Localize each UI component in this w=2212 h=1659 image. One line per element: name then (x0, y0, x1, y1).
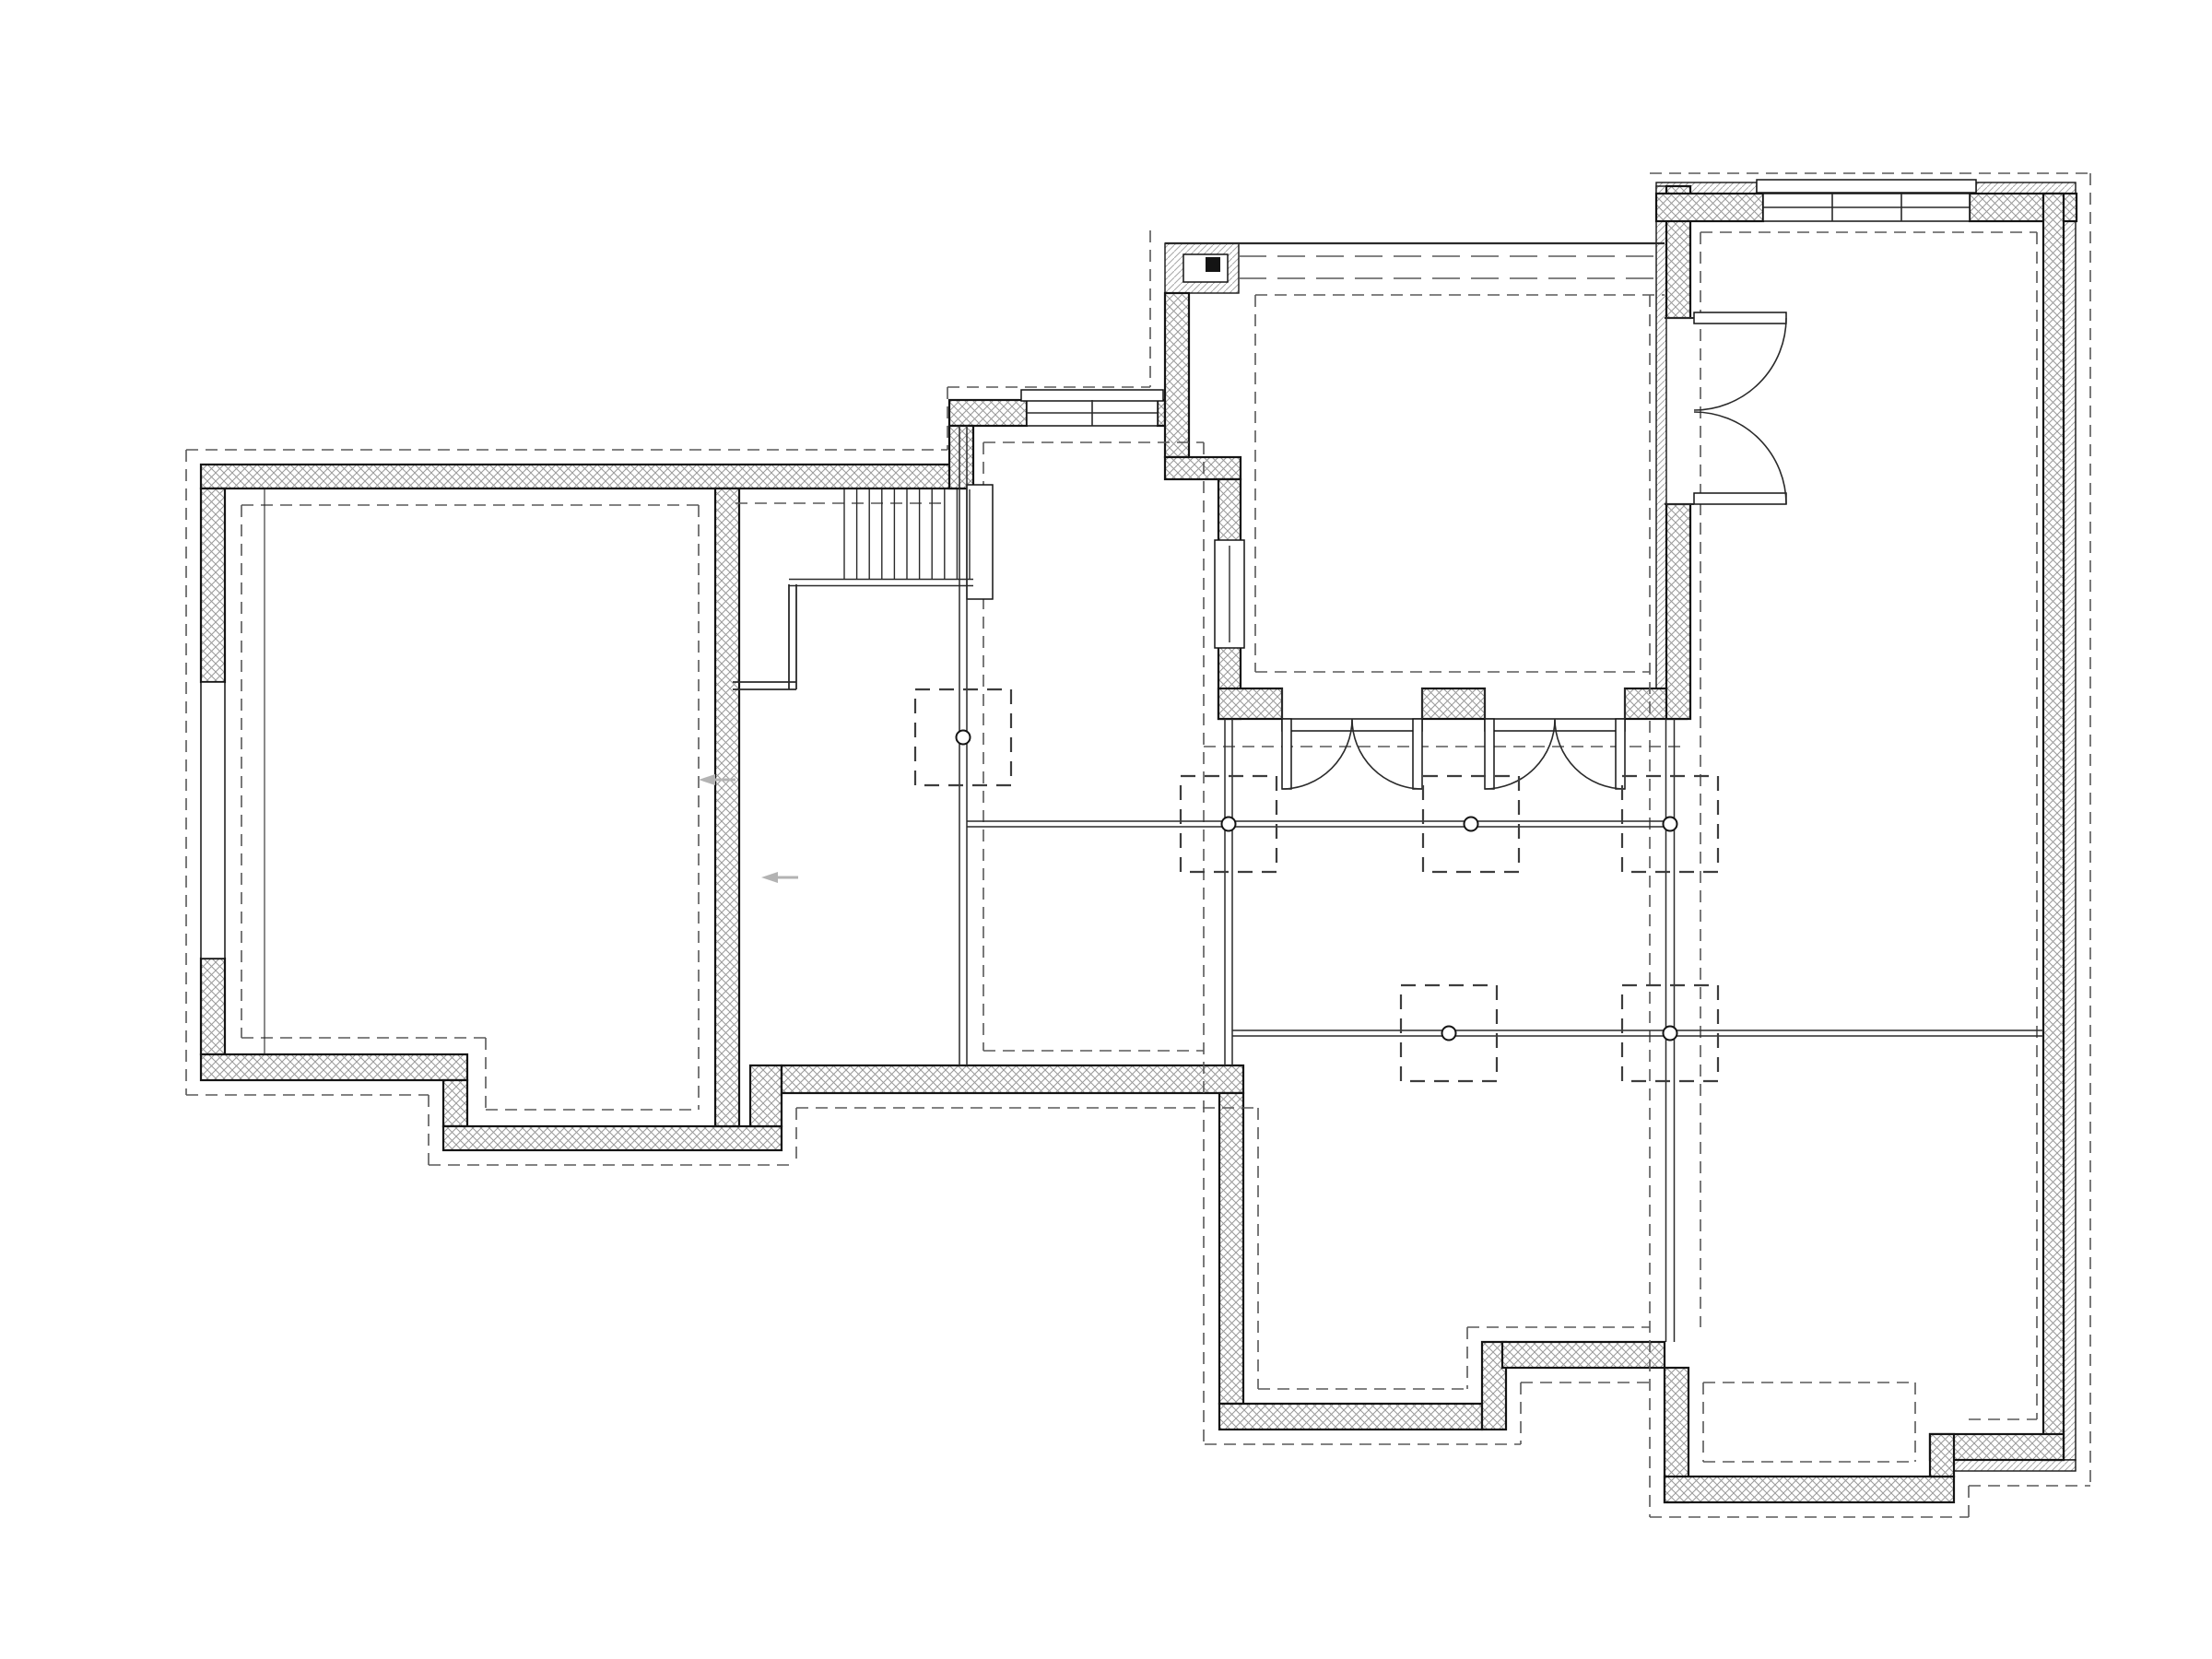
left-room-bottom-wall-a (201, 1054, 467, 1080)
center-room-window-sill (1021, 390, 1163, 401)
porch-bottom-wall-seg2 (1422, 688, 1485, 719)
steel-column (957, 731, 971, 745)
double-door-leaf-top (1694, 312, 1786, 324)
veneer-top-right (1976, 182, 2076, 194)
right-building-right-wall (2043, 194, 2064, 1460)
steel-column (1664, 818, 1677, 831)
left-room-bottom-wall-b (443, 1126, 782, 1150)
middle-step-wall (750, 1065, 782, 1126)
right-building-window-sill (1757, 180, 1976, 193)
patio-bottom-wall-high (1502, 1342, 1665, 1368)
steel-column (1664, 1027, 1677, 1041)
column-pad-layer (915, 689, 1718, 1081)
annotation-arrow-layer (699, 774, 798, 883)
porch-left-wall-upper (1165, 293, 1189, 457)
left-room-top-wall (201, 465, 967, 488)
slope-arrow (699, 774, 715, 785)
double-door-arc-top (1694, 318, 1786, 410)
patio-bottom-wall-low (1219, 1404, 1482, 1430)
veneer-right-wall (2064, 194, 2076, 1460)
left-room-left-wall-lower (201, 959, 225, 1054)
left-room-window (201, 682, 225, 959)
steel-column (1442, 1027, 1456, 1041)
terrace-bottom-wall (1665, 1477, 1954, 1502)
terrace-step-wall (1930, 1434, 1954, 1477)
porch-bottom-wall-seg1 (1218, 688, 1282, 719)
porch-left-jog-wall (1165, 457, 1241, 479)
center-room-top-wall-right (1158, 400, 1165, 426)
center-room-top-connector (949, 426, 973, 488)
veneer-left-wall (1656, 186, 1666, 719)
french-door-a-right-leaf (1413, 719, 1422, 789)
left-room-bottom-step (443, 1080, 467, 1126)
center-room-bottom-wall (782, 1065, 1243, 1093)
steel-column (1222, 818, 1236, 831)
stair-landing-edge (967, 485, 993, 599)
patio-left-wall (1219, 1093, 1243, 1404)
left-room-left-wall-upper (201, 488, 225, 682)
french-door-b-right-leaf (1616, 719, 1625, 789)
double-door-leaf-bottom (1694, 493, 1786, 504)
floor-plan-canvas (0, 0, 2212, 1659)
floor-plan-stage (0, 0, 2212, 1659)
left-room-right-wall (715, 488, 739, 1126)
footing-dashed-layer (186, 173, 2090, 1517)
concrete-wall-layer (201, 186, 2077, 1502)
french-door-a-left-leaf (1282, 719, 1291, 789)
right-building-top-wall-left (1656, 194, 1763, 221)
french-door-b-left-leaf (1485, 719, 1494, 789)
slope-arrow (761, 872, 778, 883)
center-room-top-wall-left (949, 400, 1027, 426)
porch-corner-post (1206, 257, 1220, 272)
double-door-arc-bottom (1694, 412, 1786, 504)
openings-layer (201, 180, 1976, 959)
porch-left-wall-mid (1218, 479, 1241, 546)
right-building-left-wall-lower (1666, 504, 1690, 719)
steel-column (1465, 818, 1478, 831)
